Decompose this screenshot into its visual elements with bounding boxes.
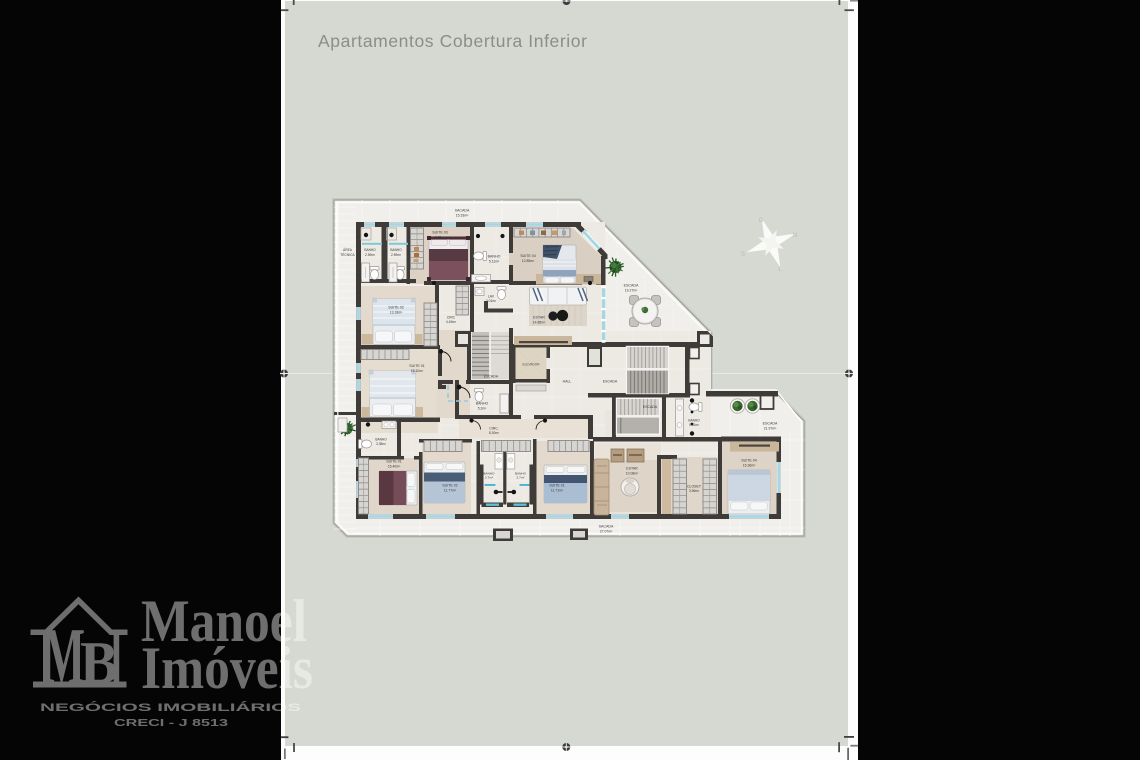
svg-text:B: B [80,630,118,696]
svg-text:M: M [43,613,85,701]
svg-text:CRECI - J 8513: CRECI - J 8513 [114,717,228,729]
svg-text:NEGÓCIOS IMOBILIÁRIOS: NEGÓCIOS IMOBILIÁRIOS [40,701,301,714]
svg-text:Imóveis: Imóveis [141,635,313,701]
